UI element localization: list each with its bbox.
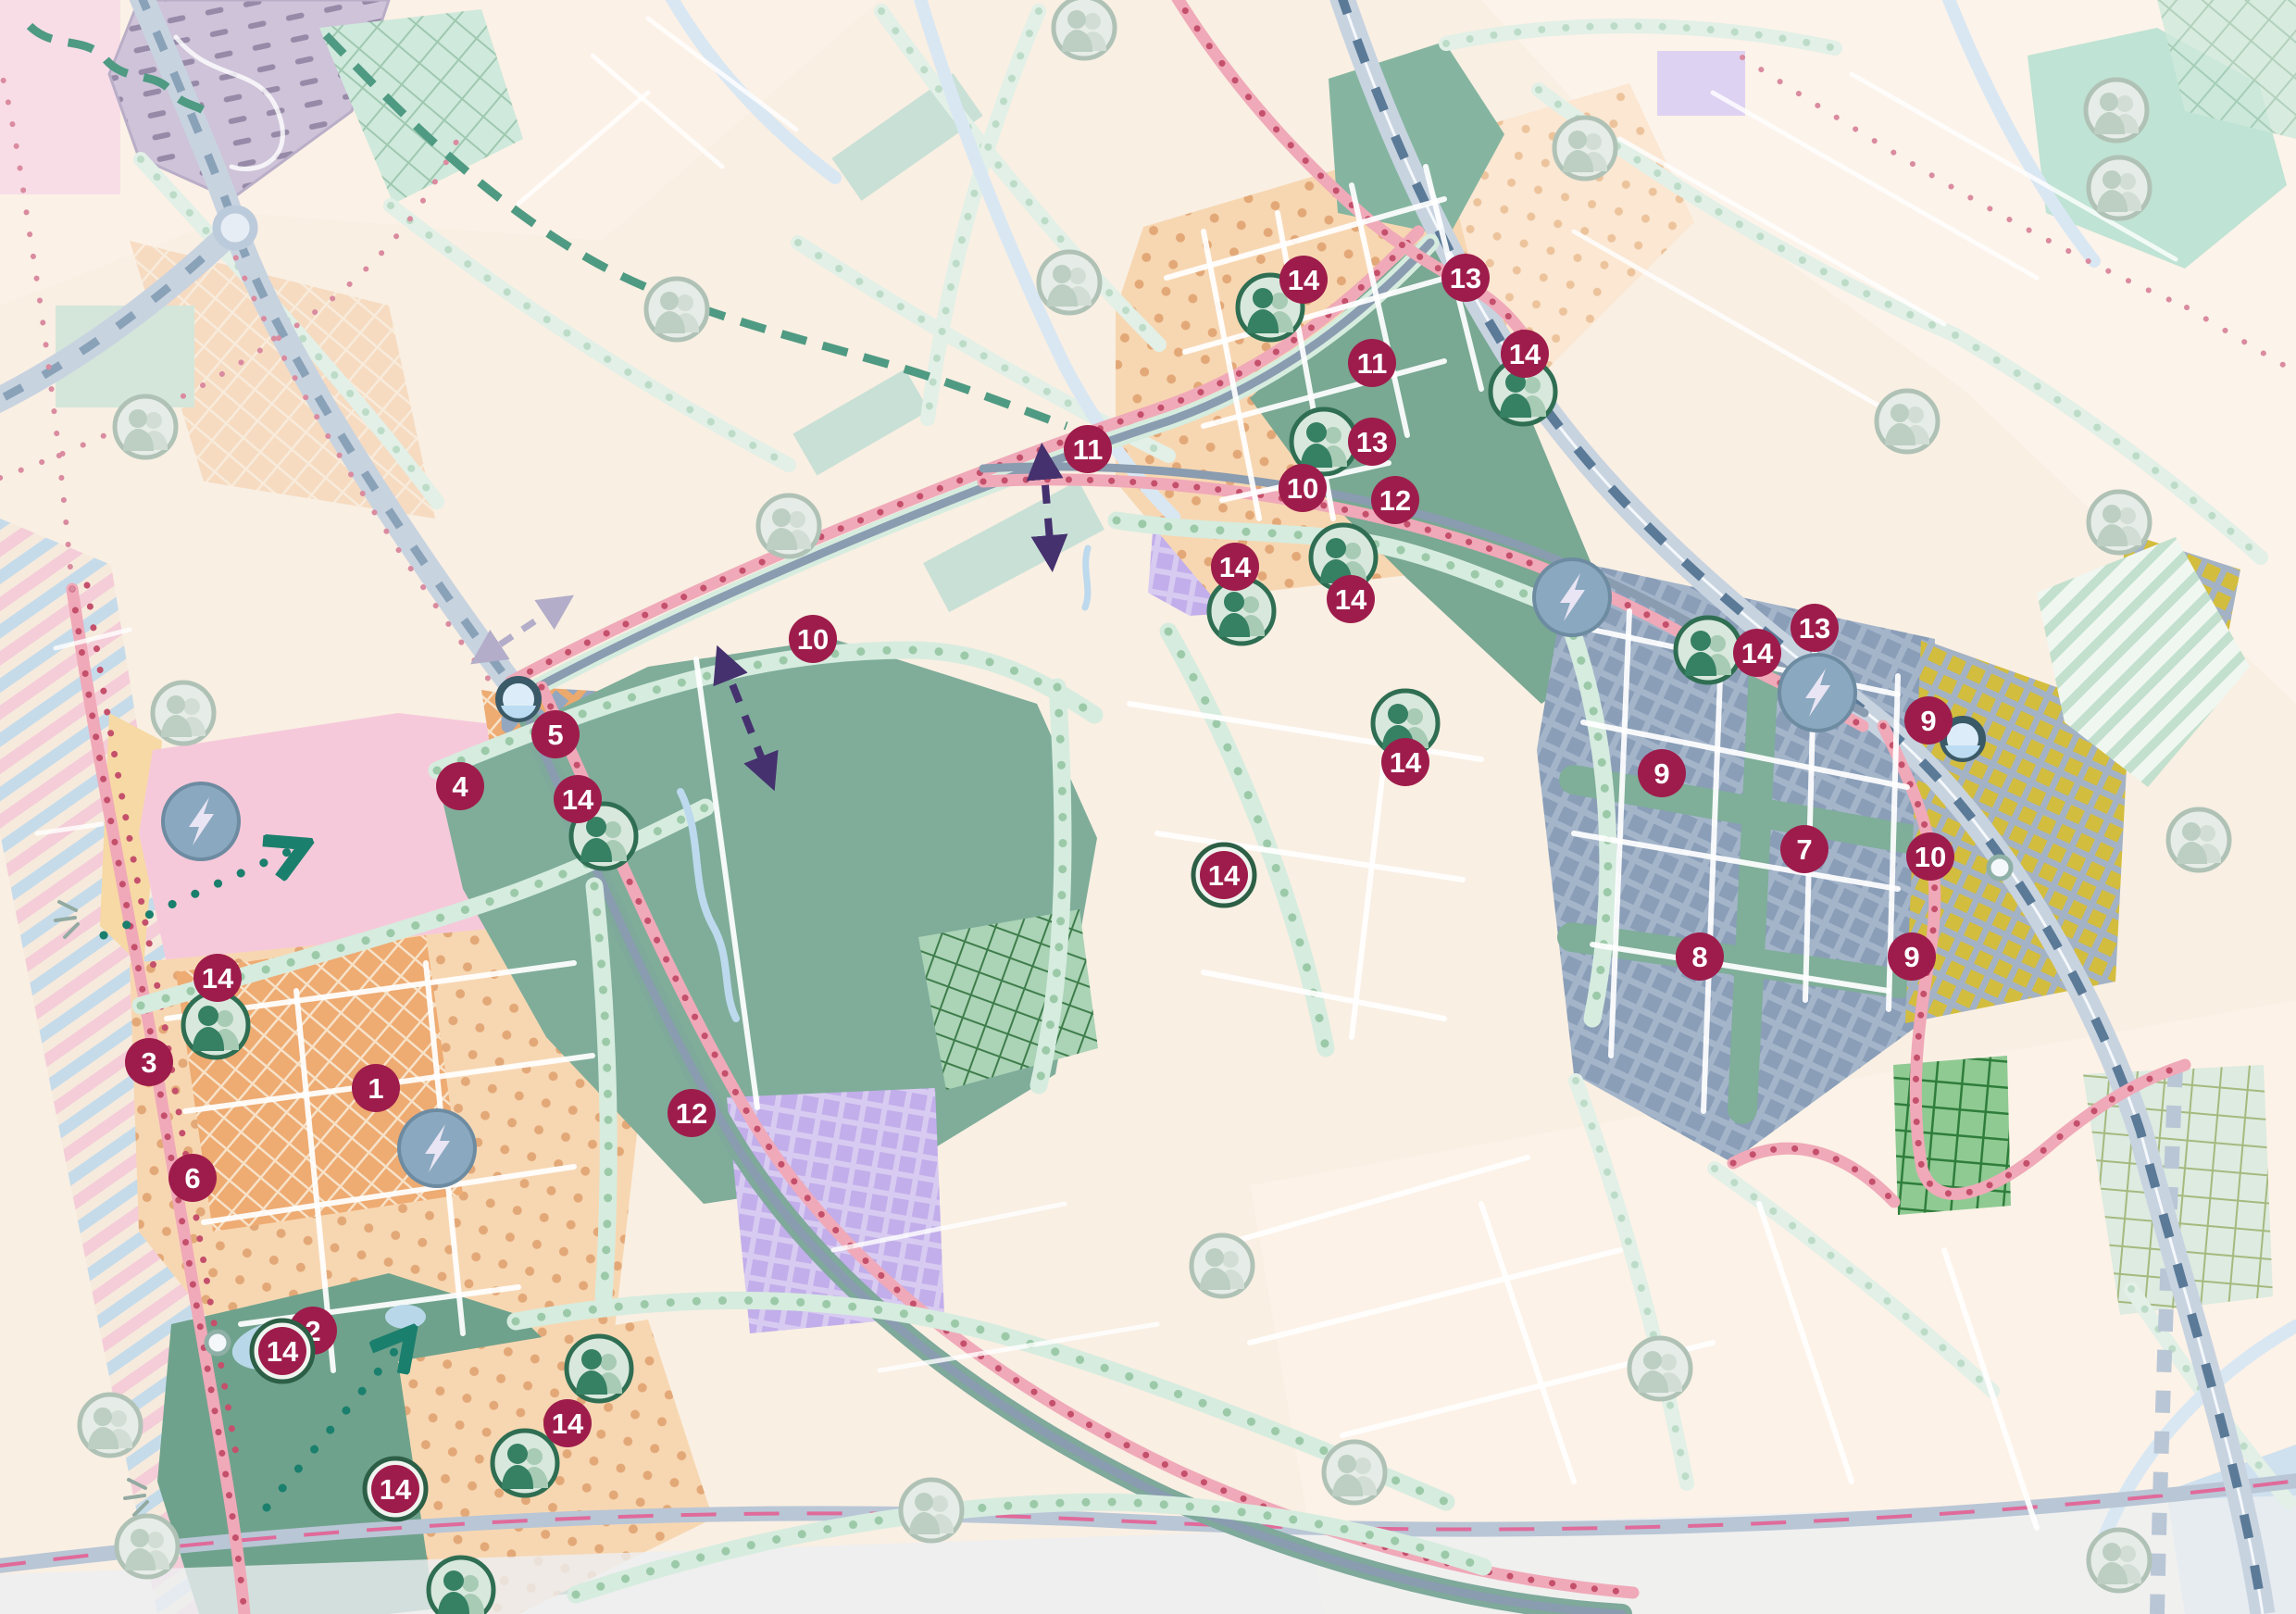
- poi-marker[interactable]: 13: [1441, 254, 1490, 302]
- poi-marker-label: 13: [1450, 262, 1481, 294]
- people-icon-faded: [1054, 0, 1115, 58]
- energy-icon[interactable]: [1779, 655, 1855, 731]
- people-icon[interactable]: [493, 1431, 557, 1495]
- people-icon-faded: [901, 1480, 962, 1541]
- people-icon-faded: [80, 1395, 141, 1456]
- poi-marker-label: 9: [1653, 757, 1669, 790]
- poi-marker-label: 14: [1335, 583, 1367, 616]
- energy-icon[interactable]: [1534, 559, 1610, 635]
- people-icon-faded: [1554, 118, 1616, 179]
- poi-marker[interactable]: 14: [193, 954, 242, 1002]
- people-icon-faded: [1192, 1235, 1253, 1296]
- people-icon[interactable]: [567, 1336, 631, 1401]
- poi-marker-label: 9: [1903, 941, 1919, 973]
- poi-marker-label: 14: [1288, 264, 1320, 296]
- poi-marker-label: 14: [267, 1335, 299, 1368]
- people-icon-faded: [117, 1516, 178, 1577]
- roundabout-icon: [217, 209, 254, 246]
- poi-marker[interactable]: 14: [554, 775, 602, 823]
- poi-marker[interactable]: 14: [1733, 629, 1781, 677]
- poi-marker[interactable]: 1: [352, 1064, 400, 1112]
- people-icon-faded: [2089, 157, 2150, 219]
- poi-marker[interactable]: 10: [1279, 464, 1327, 512]
- people-icon-faded: [646, 279, 707, 340]
- people-icon-faded: [153, 682, 214, 744]
- poi-marker-ringed[interactable]: 14: [1193, 845, 1254, 906]
- people-icon-faded: [2089, 492, 2150, 553]
- zone-pink-corner: [0, 0, 120, 194]
- poi-marker[interactable]: 11: [1064, 425, 1112, 473]
- poi-marker[interactable]: 13: [1348, 418, 1396, 466]
- small-node-icon: [1989, 857, 2011, 879]
- poi-marker[interactable]: 6: [168, 1154, 217, 1202]
- poi-marker-label: 14: [562, 783, 594, 816]
- poi-marker[interactable]: 7: [1780, 825, 1828, 873]
- poi-marker[interactable]: 3: [125, 1038, 173, 1086]
- poi-marker[interactable]: 14: [1279, 256, 1328, 304]
- poi-marker-label: 9: [1920, 705, 1936, 737]
- poi-marker-label: 14: [1509, 338, 1541, 370]
- people-icon-faded: [2086, 80, 2147, 141]
- poi-marker-label: 8: [1691, 941, 1707, 973]
- people-icon-faded: [1877, 391, 1938, 452]
- poi-marker[interactable]: 9: [1904, 696, 1953, 744]
- poi-marker-label: 3: [141, 1046, 156, 1079]
- poi-marker-label: 14: [1741, 637, 1774, 669]
- poi-marker-label: 13: [1356, 426, 1388, 458]
- poi-marker-label: 13: [1799, 612, 1830, 644]
- poi-marker[interactable]: 8: [1676, 932, 1724, 981]
- poi-marker-label: 1: [368, 1072, 383, 1105]
- small-node-icon: [206, 1332, 229, 1354]
- poi-marker-label: 12: [676, 1097, 707, 1130]
- poi-marker[interactable]: 12: [668, 1089, 716, 1137]
- people-icon[interactable]: [1676, 618, 1741, 682]
- poi-marker-label: 12: [1379, 484, 1411, 517]
- poi-marker-label: 5: [547, 719, 563, 751]
- poi-marker-label: 14: [380, 1473, 412, 1506]
- poi-marker[interactable]: 14: [543, 1399, 592, 1447]
- poi-marker[interactable]: 14: [1327, 575, 1375, 623]
- energy-icon[interactable]: [399, 1110, 475, 1186]
- poi-marker-label: 14: [1219, 551, 1252, 583]
- poi-marker[interactable]: 5: [531, 710, 580, 758]
- people-icon[interactable]: [183, 993, 248, 1057]
- poi-marker-label: 10: [797, 623, 829, 656]
- poi-marker-label: 6: [184, 1162, 200, 1195]
- people-icon-faded: [1629, 1338, 1691, 1399]
- poi-marker[interactable]: 11: [1348, 339, 1396, 387]
- poi-marker-label: 11: [1073, 433, 1104, 466]
- poi-marker[interactable]: 9: [1638, 749, 1686, 797]
- energy-icon[interactable]: [163, 783, 239, 859]
- station-icon[interactable]: [499, 680, 538, 719]
- poi-marker-label: 10: [1287, 472, 1318, 505]
- map-canvas[interactable]: 1234567899910101011111212131313141414141…: [0, 0, 2296, 1614]
- poi-marker-label: 14: [1208, 859, 1241, 892]
- poi-marker[interactable]: 12: [1371, 476, 1419, 524]
- people-icon-faded: [1324, 1442, 1385, 1503]
- people-icon-faded: [1039, 252, 1100, 313]
- people-icon-faded: [758, 495, 819, 557]
- poi-marker-ringed[interactable]: 14: [252, 1320, 313, 1382]
- people-icon-faded: [2089, 1530, 2150, 1591]
- poi-marker-label: 7: [1796, 833, 1812, 866]
- people-icon-faded: [2168, 809, 2229, 870]
- poi-marker-label: 11: [1357, 347, 1388, 380]
- poi-marker-label: 4: [452, 770, 468, 803]
- people-icon-faded: [115, 396, 176, 457]
- poi-marker[interactable]: 14: [1501, 330, 1549, 378]
- urban-plan-map: 1234567899910101011111212131313141414141…: [0, 0, 2296, 1614]
- poi-marker[interactable]: 4: [436, 762, 484, 810]
- poi-marker[interactable]: 10: [1906, 832, 1954, 881]
- poi-marker[interactable]: 13: [1791, 604, 1839, 652]
- poi-marker-ringed[interactable]: 14: [365, 1458, 426, 1520]
- poi-marker-label: 14: [202, 962, 234, 995]
- poi-marker[interactable]: 14: [1381, 738, 1429, 786]
- poi-marker-label: 10: [1915, 841, 1946, 873]
- poi-marker[interactable]: 9: [1888, 932, 1936, 981]
- poi-marker[interactable]: 10: [789, 615, 837, 663]
- poi-marker-label: 14: [552, 1408, 584, 1440]
- poi-marker-label: 14: [1390, 746, 1422, 779]
- poi-marker[interactable]: 14: [1211, 543, 1259, 591]
- people-icon[interactable]: [429, 1558, 493, 1614]
